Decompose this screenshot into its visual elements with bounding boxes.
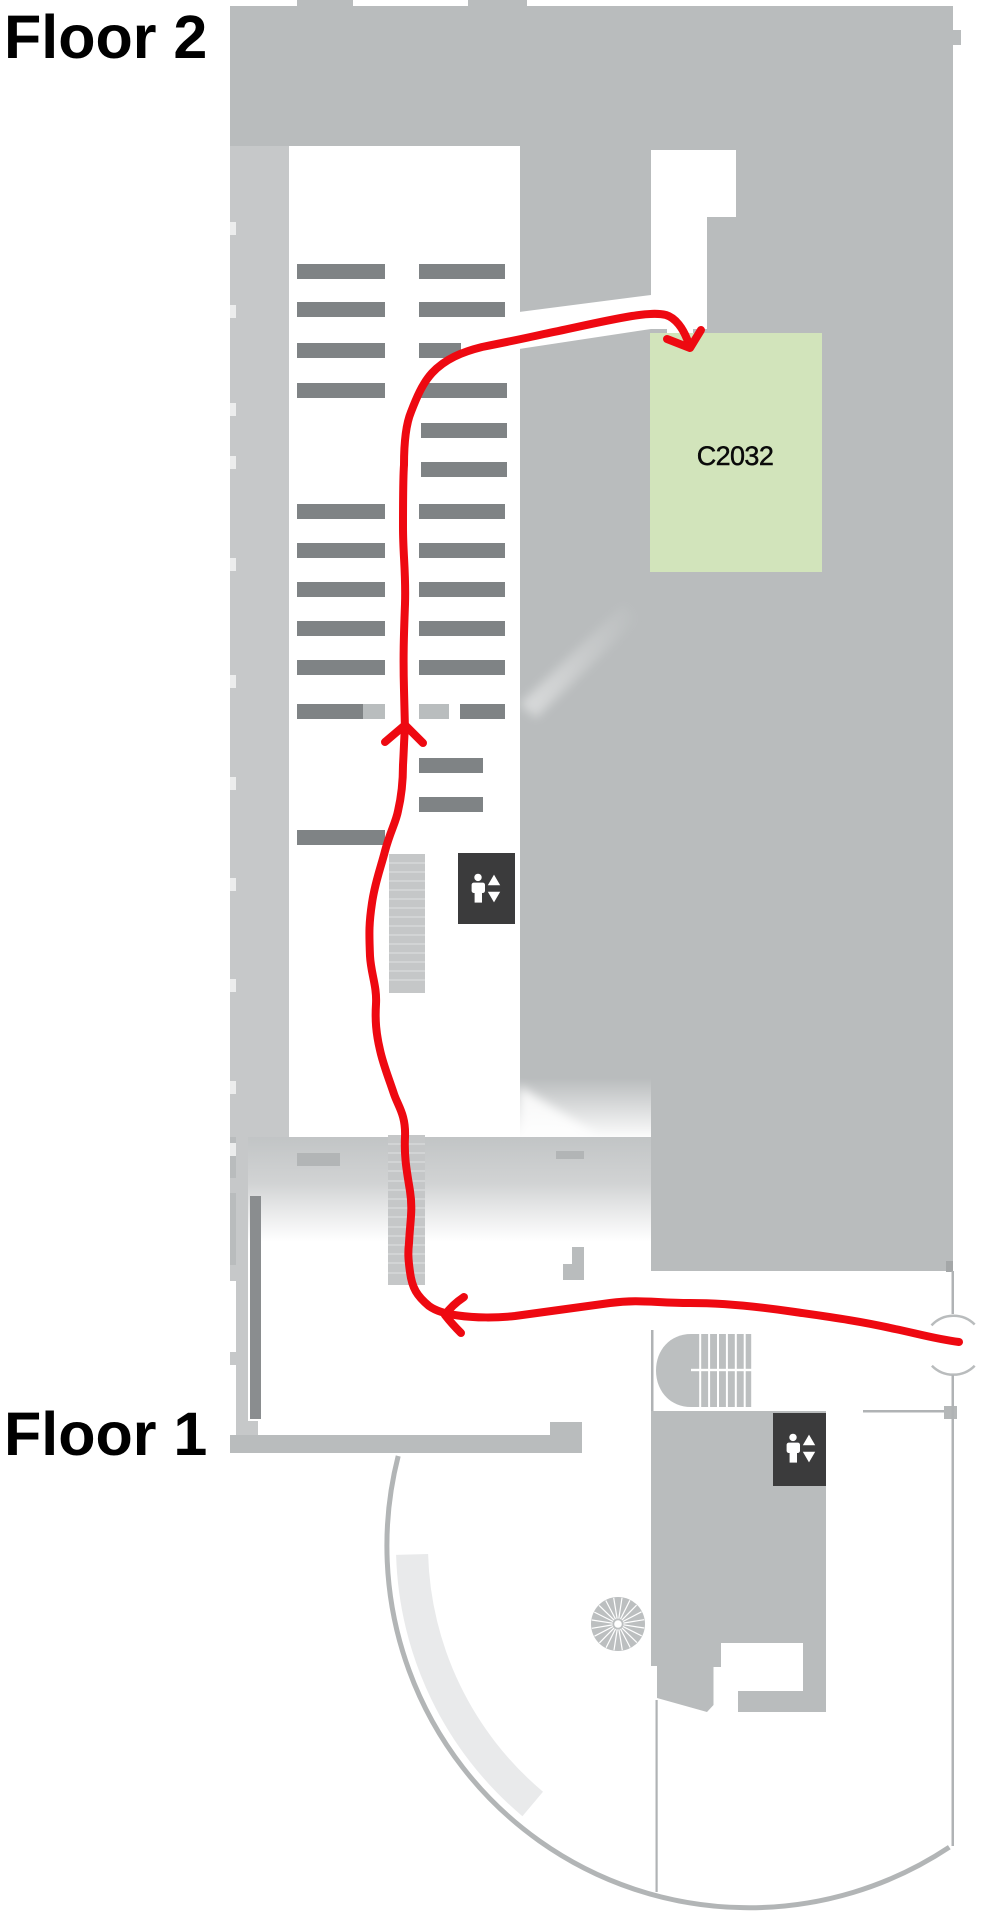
svg-text:Floor 2: Floor 2 <box>4 3 207 71</box>
svg-text:Floor 1: Floor 1 <box>4 1400 207 1468</box>
svg-text:C2032: C2032 <box>697 441 774 471</box>
